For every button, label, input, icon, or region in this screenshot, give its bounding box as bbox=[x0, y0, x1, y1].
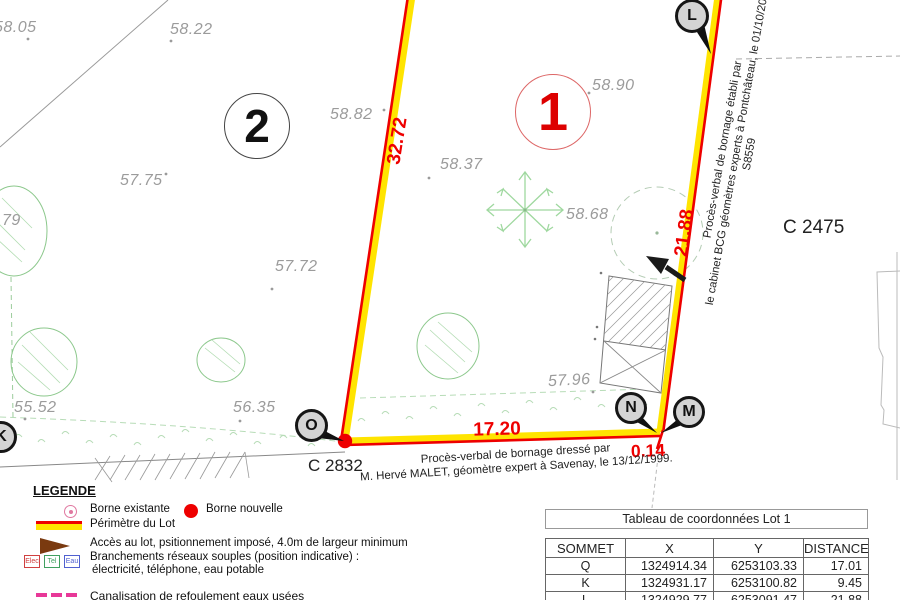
survey-point-N: N bbox=[615, 392, 647, 424]
tree-symbol bbox=[487, 172, 563, 247]
legend-canalisation: Canalisation de refoulement eaux usées bbox=[90, 589, 304, 600]
network-box-elec-label: Elec bbox=[25, 558, 39, 565]
cell-y: 6253091.47 bbox=[714, 592, 804, 600]
elevation-label: .79 bbox=[0, 212, 21, 230]
borne-nouvelle-icon bbox=[184, 504, 198, 518]
cell-distance: 17.01 bbox=[804, 558, 869, 575]
network-box-tel-icon: Tel bbox=[44, 555, 60, 568]
legend-perimetre: Périmètre du Lot bbox=[90, 518, 175, 530]
network-box-eau-label: Eau bbox=[66, 558, 78, 565]
bushes bbox=[0, 186, 479, 396]
cell-sommet: K bbox=[546, 575, 626, 592]
coordinates-table-block: Tableau de coordonnées Lot 1 SOMMET X Y … bbox=[545, 509, 868, 600]
survey-point-K-label: K bbox=[0, 428, 7, 446]
cell-x: 1324931.17 bbox=[626, 575, 714, 592]
col-sommet: SOMMET bbox=[546, 539, 626, 558]
canalisation-icon bbox=[66, 593, 77, 597]
legend-branchements-1: Branchements réseaux souples (position i… bbox=[90, 551, 359, 563]
survey-point-O-label: O bbox=[305, 417, 317, 435]
survey-point-L: L bbox=[675, 0, 709, 33]
coordinates-table: SOMMET X Y DISTANCE Q 1324914.34 6253103… bbox=[545, 538, 869, 600]
lot-2-circle: 2 bbox=[224, 93, 290, 159]
lot-1-circle: 1 bbox=[515, 74, 591, 150]
lot-2-number: 2 bbox=[244, 99, 270, 153]
elevation-label: 57.75 bbox=[120, 172, 163, 190]
elevation-label: 57.96 bbox=[548, 371, 591, 391]
table-row: K 1324931.17 6253100.82 9.45 bbox=[546, 575, 869, 592]
perimetre-swatch-icon bbox=[36, 521, 82, 530]
legend-acces: Accès au lot, psitionnement imposé, 4.0m… bbox=[90, 537, 408, 549]
elevation-label: 58.90 bbox=[592, 77, 635, 95]
survey-point-O: O bbox=[295, 409, 328, 442]
access-arrow-icon bbox=[40, 538, 70, 554]
network-box-tel-label: Tel bbox=[48, 558, 57, 565]
table-row: Q 1324914.34 6253103.33 17.01 bbox=[546, 558, 869, 575]
col-distance: DISTANCE bbox=[804, 539, 869, 558]
col-y: Y bbox=[714, 539, 804, 558]
cadastral-plan: 2 1 L O N M K 58.05 58.22 58.82 58.90 57… bbox=[0, 0, 900, 600]
elevation-label: 58.82 bbox=[330, 106, 373, 124]
parcel-id-c2475: C 2475 bbox=[783, 217, 844, 239]
cell-y: 6253100.82 bbox=[714, 575, 804, 592]
measure-bottom-side: 17.20 bbox=[473, 418, 521, 441]
cell-distance: 9.45 bbox=[804, 575, 869, 592]
table-row: L 1324929.77 6253091.47 21.88 bbox=[546, 592, 869, 600]
road-hatching bbox=[95, 452, 249, 482]
elevation-label: 58.37 bbox=[440, 156, 483, 174]
legend-title: LEGENDE bbox=[33, 483, 96, 498]
elevation-label: 56.35 bbox=[233, 399, 276, 417]
legend-borne-existante: Borne existante bbox=[90, 503, 170, 515]
borne-existante-icon bbox=[64, 505, 77, 518]
elevation-label: 58.68 bbox=[566, 206, 609, 224]
elevation-ticks bbox=[24, 38, 595, 423]
borne-existante-icon-dot bbox=[69, 510, 73, 514]
elevation-label: 58.22 bbox=[170, 21, 213, 39]
borne-nouvelle-marker bbox=[338, 434, 352, 448]
lot-1-number: 1 bbox=[538, 81, 568, 143]
survey-point-M: M bbox=[673, 396, 705, 428]
parcel-id-c2832: C 2832 bbox=[308, 456, 363, 476]
coordinates-table-title: Tableau de coordonnées Lot 1 bbox=[545, 509, 868, 529]
legend-borne-nouvelle: Borne nouvelle bbox=[206, 503, 283, 515]
col-x: X bbox=[626, 539, 714, 558]
canalisation-icon bbox=[51, 593, 62, 597]
survey-point-N-label: N bbox=[625, 399, 637, 417]
elevation-label: 57.72 bbox=[275, 258, 318, 276]
survey-point-L-label: L bbox=[687, 7, 697, 25]
lot-perimeter bbox=[341, 0, 722, 449]
cell-x: 1324929.77 bbox=[626, 592, 714, 600]
cell-y: 6253103.33 bbox=[714, 558, 804, 575]
canalisation-icon bbox=[36, 593, 47, 597]
elevation-label: 55.52 bbox=[14, 399, 57, 417]
survey-point-M-label: M bbox=[682, 403, 695, 421]
cell-sommet: Q bbox=[546, 558, 626, 575]
network-box-elec-icon: Elec bbox=[24, 555, 40, 568]
legend-branchements-2: électricité, téléphone, eau potable bbox=[92, 564, 264, 576]
cell-x: 1324914.34 bbox=[626, 558, 714, 575]
network-box-eau-icon: Eau bbox=[64, 555, 80, 568]
cell-distance: 21.88 bbox=[804, 592, 869, 600]
elevation-label: 58.05 bbox=[0, 19, 37, 37]
table-header-row: SOMMET X Y DISTANCE bbox=[546, 539, 869, 558]
cell-sommet: L bbox=[546, 592, 626, 600]
